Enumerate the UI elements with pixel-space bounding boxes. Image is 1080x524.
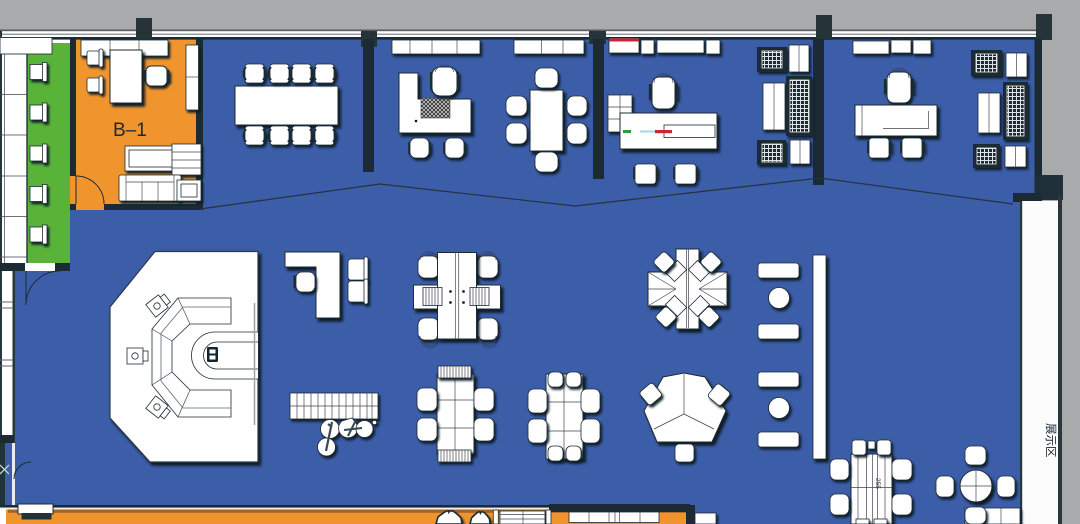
svg-text:展示区: 展示区 xyxy=(1044,423,1057,458)
svg-text:255: 255 xyxy=(874,478,881,489)
svg-text:B–1: B–1 xyxy=(113,120,147,141)
